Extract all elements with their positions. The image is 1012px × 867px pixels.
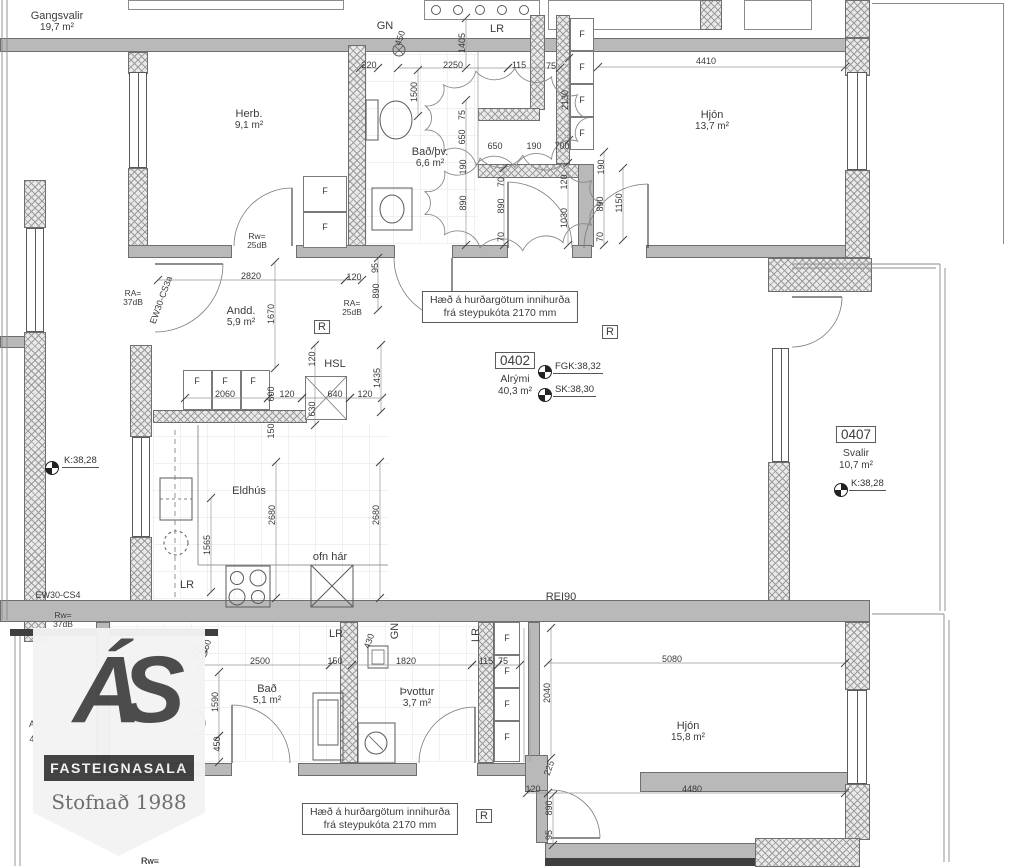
note-line2: frá steypukóta 2170 mm: [310, 819, 450, 832]
dimension-tick: [377, 341, 385, 349]
room-area: 15,8 m²: [671, 732, 705, 744]
balcony-rail: [15, 636, 20, 866]
wall: [845, 38, 870, 76]
unit-number: 0407: [836, 426, 876, 443]
wall: [646, 245, 846, 258]
wall: [128, 245, 232, 258]
room-label: Hjón13,7 m²: [695, 109, 729, 133]
acoustic-line: 37dB: [53, 620, 73, 629]
wardrobe-label: F: [504, 632, 510, 644]
dimension-tick: [346, 394, 354, 402]
room-name: Bað: [253, 683, 281, 695]
as-fasteignasala-logo: ÁS FASTEIGNASALA Stofnað 1988: [33, 628, 205, 856]
wardrobe-label: F: [504, 698, 510, 710]
dimension-label: 630: [306, 401, 318, 416]
level-benchmark-icon: [45, 461, 59, 475]
fixture-label: LR: [329, 628, 343, 640]
wall-rei90: [0, 600, 870, 622]
room-area: 3,7 m²: [400, 698, 435, 710]
unit-number: 0402: [495, 352, 535, 369]
dimension-tick: [271, 258, 279, 266]
dimension-tick: [374, 306, 382, 314]
wall: [768, 258, 872, 292]
acoustic-line: 25dB: [342, 308, 362, 317]
room-area: 13,7 m²: [695, 121, 729, 133]
wall: [845, 170, 870, 258]
upper-wall-fragment: [845, 0, 870, 38]
dimension-tick: [600, 148, 608, 156]
fixture-label: LR: [490, 23, 504, 35]
room-label: Eldhús: [232, 485, 266, 497]
fixture-label: LR: [180, 579, 194, 591]
wall: [528, 622, 540, 756]
dimension-label: 120: [357, 388, 372, 400]
wardrobe-label: F: [504, 665, 510, 677]
dimension-label: 115: [479, 655, 493, 667]
dimension-label: 190: [526, 140, 541, 152]
dimension-label: 190: [457, 159, 469, 174]
dimension-label: 1435: [371, 368, 383, 388]
note-line2: frá steypukóta 2170 mm: [430, 307, 570, 320]
wall-type-label: EW30-CS3a: [147, 274, 175, 325]
wall: [845, 784, 870, 840]
note-line1: Hæð á hurðargötum innihurða: [430, 294, 570, 307]
dimension-tick: [378, 394, 386, 402]
dimension-label: 190: [595, 159, 607, 174]
dimension-label: 890: [370, 283, 382, 298]
dimension-label: 4410: [696, 55, 716, 67]
dimension-label: 2130: [559, 90, 571, 110]
room-name: Eldhús: [232, 485, 266, 497]
dimension-label: 70: [495, 177, 507, 187]
wall: [478, 622, 494, 763]
room-area: 5,1 m²: [253, 695, 281, 707]
door-swing-arc: [552, 790, 600, 838]
window: [132, 437, 150, 537]
dimension-tick: [600, 241, 608, 249]
level-benchmark-icon: [538, 388, 552, 402]
dimension-label: 4480: [682, 783, 702, 795]
unit-name: Alrými: [495, 373, 535, 385]
wardrobe-label: F: [250, 375, 256, 387]
door-swing-arc: [792, 297, 842, 347]
logo-monogram: ÁS: [33, 636, 205, 754]
room-label: Herb.9,1 m²: [235, 108, 263, 132]
dimension-label: 1150: [613, 193, 625, 212]
fixture-label: LR: [470, 628, 482, 642]
wall: [845, 622, 870, 690]
wall: [640, 772, 848, 792]
dimension-label: 890: [495, 198, 507, 213]
wardrobe-label: F: [579, 28, 585, 40]
dimension-tick: [594, 63, 602, 71]
dimension-label: 640: [327, 388, 342, 400]
door-height-note-bottom: Hæð á hurðargötum innihurða frá steypukó…: [302, 803, 458, 835]
dimension-label: 70: [594, 232, 606, 242]
dimension-label: 70: [495, 232, 507, 242]
room-name: Andd.: [227, 305, 256, 317]
dimension-label: 2060: [215, 388, 235, 400]
wall: [452, 245, 508, 258]
room-name: Hjón: [695, 109, 729, 121]
acoustic-label: Rw=25dB: [247, 232, 267, 250]
logo-band: FASTEIGNASALA: [44, 755, 194, 781]
room-name: Hjón: [671, 720, 705, 732]
dimension-label: 120: [525, 783, 540, 795]
window: [772, 348, 789, 462]
dimension-label: 1405: [456, 33, 468, 53]
balcony-rail: [872, 614, 949, 862]
dimension-label: 1030: [558, 208, 570, 228]
acoustic-label: RA=37dB: [123, 289, 143, 307]
dimension-label: 150: [265, 423, 277, 438]
dimension-label: 75: [456, 110, 468, 120]
level-label: FGK:38,32: [553, 361, 603, 374]
upper-unit-fragment: [744, 0, 812, 30]
wall-type-label: EW30-CS4: [35, 589, 80, 601]
dimension-label: 1670: [265, 304, 277, 324]
level-label: SK:38,30: [553, 384, 596, 397]
window: [847, 690, 867, 784]
wall: [768, 462, 790, 615]
room-label: Gangsvalir19,7 m²: [31, 10, 84, 34]
logo-founded: Stofnað 1988: [33, 790, 205, 814]
dimension-label: 600: [265, 386, 277, 401]
fixture-label: ofn hár: [313, 551, 347, 563]
room-label: Bað/þv.6,6 m²: [412, 146, 449, 170]
room-area: 9,1 m²: [235, 120, 263, 132]
dimension-label: 650: [487, 140, 502, 152]
wall: [530, 15, 545, 110]
wardrobe-label: F: [322, 221, 328, 233]
dimension-label: 1820: [396, 655, 416, 667]
dimension-tick: [564, 241, 572, 249]
upper-closet-fragment: [424, 0, 540, 20]
dimension-label: 95: [543, 830, 555, 840]
dimension-label: 890: [594, 196, 606, 211]
dimension-tick: [271, 364, 279, 372]
wall: [128, 168, 148, 246]
fixture-label: HSL: [324, 358, 345, 370]
acoustic-line: 25dB: [247, 241, 267, 250]
dimension-label: 220: [361, 59, 376, 71]
dimension-label: 1500: [408, 82, 420, 102]
floor-plan-canvas: Hæð á hurðargötum innihurða frá steypukó…: [0, 0, 1012, 867]
room-name: Bað/þv.: [412, 146, 449, 158]
wall: [478, 108, 540, 121]
window: [26, 228, 44, 332]
dimension-label: 75: [546, 60, 556, 72]
wall: [153, 410, 307, 423]
room-area: 5,9 m²: [227, 317, 256, 329]
dimension-label: 120: [346, 271, 361, 283]
dimension-tick: [346, 394, 354, 402]
dimension-label: 2680: [370, 505, 382, 525]
wardrobe-label: F: [579, 61, 585, 73]
dimension-label: 5080: [662, 653, 682, 665]
dimension-label: 890: [457, 195, 469, 210]
wardrobe-label: F: [322, 185, 328, 197]
dimension-label: 450: [211, 736, 223, 751]
wall-dark: [545, 858, 760, 866]
wall: [24, 180, 46, 228]
upper-wall-fragment: [700, 0, 722, 30]
wall: [130, 537, 152, 607]
wardrobe-label: F: [579, 94, 585, 106]
level-label: K:38,28: [849, 478, 886, 491]
room-label: Þvottur3,7 m²: [400, 686, 435, 710]
room-label: Bað5,1 m²: [253, 683, 281, 707]
unit-area: 40,3 m²: [495, 386, 535, 397]
dimension-label: 115: [512, 59, 526, 71]
dimension-tick: [504, 64, 512, 72]
fixture-label: GN: [377, 20, 394, 32]
unit-tag: 0407Svalir10,7 m²: [836, 426, 876, 471]
dimension-label: 2040: [541, 683, 553, 703]
wall: [348, 45, 366, 246]
radiator-marker: R: [314, 320, 330, 334]
wardrobe-label: F: [194, 375, 200, 387]
note-line1: Hæð á hurðargötum innihurða: [310, 806, 450, 819]
dimension-label: 2500: [250, 655, 270, 667]
dimension-tick: [311, 341, 319, 349]
dimension-label: 700: [554, 140, 569, 152]
dimension-label: 1565: [201, 535, 213, 555]
acoustic-label: Rw=: [141, 857, 158, 866]
unit-tag: 0402Alrými40,3 m²: [495, 352, 535, 397]
acoustic-label: RA=25dB: [342, 299, 362, 317]
neighbor-balcony-top-right: [872, 3, 1004, 244]
radiator-marker: R: [602, 325, 618, 339]
fire-rating-label: REI90: [546, 591, 577, 603]
wardrobe-label: F: [222, 375, 228, 387]
window: [129, 72, 147, 168]
dimension-tick: [377, 408, 385, 416]
acoustic-label: Rw=37dB: [53, 611, 73, 629]
dimension-tick: [547, 624, 555, 632]
room-area: 19,7 m²: [31, 22, 84, 34]
dimension-label: 120: [558, 174, 570, 189]
window: [847, 72, 867, 170]
acoustic-line: Rw=: [141, 857, 158, 866]
acoustic-line: 37dB: [123, 298, 143, 307]
level-label: K:38,28: [62, 455, 99, 468]
door-height-note-top: Hæð á hurðargötum innihurða frá steypukó…: [422, 291, 578, 323]
unit-name: Svalir: [836, 447, 876, 459]
unit-area: 10,7 m²: [836, 460, 876, 471]
wall: [578, 164, 594, 247]
level-benchmark-icon: [538, 365, 552, 379]
wall: [130, 345, 152, 437]
dimension-label: 120: [306, 351, 318, 366]
wall: [0, 38, 856, 52]
dimension-label: 150: [327, 655, 342, 667]
wall: [755, 838, 860, 867]
wall: [128, 52, 148, 74]
wall: [477, 763, 528, 776]
dimension-label: 120: [279, 388, 294, 400]
dimension-tick: [549, 791, 557, 799]
wardrobe-label: F: [579, 127, 585, 139]
room-name: Herb.: [235, 108, 263, 120]
dimension-label: 1590: [209, 692, 221, 712]
room-name: Þvottur: [400, 686, 435, 698]
upper-unit-fragment: [128, 0, 344, 10]
wall: [298, 763, 417, 776]
dimension-label: 2680: [266, 505, 278, 525]
room-label: Andd.5,9 m²: [227, 305, 256, 329]
dimension-tick: [619, 236, 627, 244]
level-benchmark-icon: [834, 483, 848, 497]
room-area: 6,6 m²: [412, 158, 449, 170]
room-name: Gangsvalir: [31, 10, 84, 22]
dimension-label: 95: [369, 263, 381, 273]
room-label: Hjón15,8 m²: [671, 720, 705, 744]
dimension-label: 2820: [241, 270, 261, 282]
dimension-label: 650: [456, 129, 468, 144]
wall: [572, 245, 592, 258]
dimension-tick: [504, 64, 512, 72]
radiator-marker: R: [476, 809, 492, 823]
wall: [340, 622, 358, 763]
dimension-label: 890: [543, 800, 555, 815]
wardrobe-label: F: [504, 731, 510, 743]
fixture-label: GN: [389, 623, 401, 640]
balcony-rail: [2, 0, 7, 620]
dimension-label: 2250: [443, 59, 463, 71]
dimension-tick: [619, 164, 627, 172]
dimension-tick: [544, 659, 552, 667]
